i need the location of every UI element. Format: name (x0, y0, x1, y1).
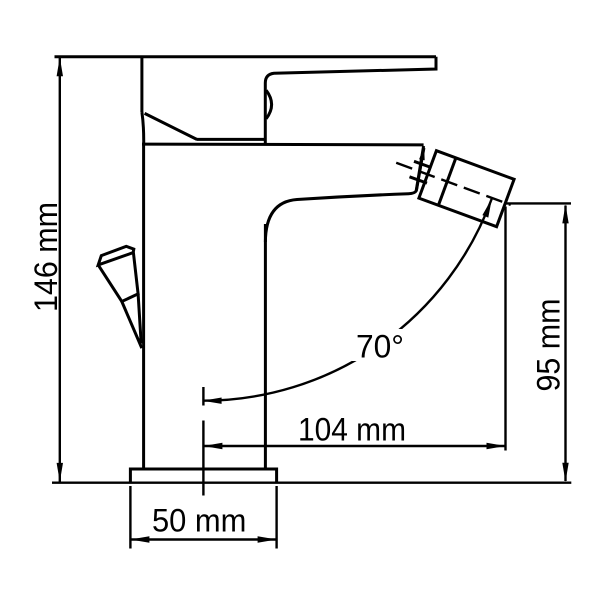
svg-text:104 mm: 104 mm (298, 411, 406, 447)
svg-text:70°: 70° (356, 329, 404, 365)
svg-text:95 mm: 95 mm (530, 299, 566, 392)
svg-text:50 mm: 50 mm (152, 503, 247, 539)
svg-text:146 mm: 146 mm (28, 202, 64, 312)
